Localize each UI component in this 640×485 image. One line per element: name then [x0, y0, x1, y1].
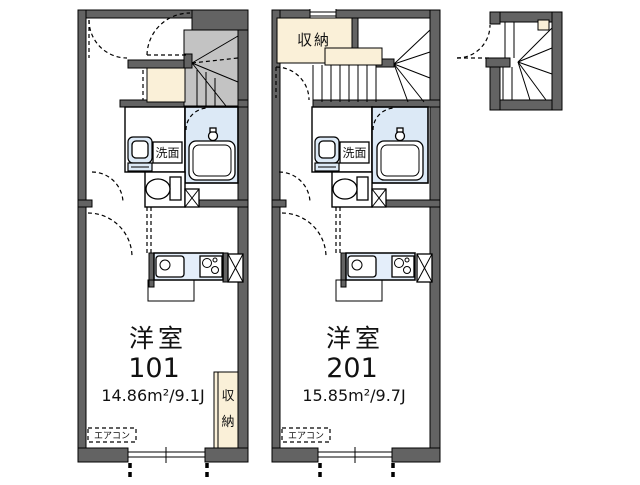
area-101: 14.86m²/9.1J	[101, 386, 204, 405]
unit-101-window	[128, 447, 207, 479]
door-arc-101-entry	[89, 20, 127, 58]
aircon-label-201: エアコン	[288, 432, 324, 442]
floorplan-drawing: 洗面	[0, 0, 640, 485]
closet-char-bottom-101: 納	[221, 415, 234, 430]
unit-101-washroom: 洗面	[125, 107, 185, 172]
toilet-bowl-201	[333, 179, 357, 199]
kitchen-stove-101	[200, 256, 222, 277]
external-staircase	[457, 12, 562, 110]
unit-101-bathroom	[185, 107, 238, 183]
unit-101-hall-doors	[88, 207, 151, 257]
toilet-tank-101	[170, 177, 181, 200]
unit-201-toilet-room	[279, 172, 386, 207]
kitchen-stove-201	[392, 256, 414, 277]
washroom-label-201: 洗面	[342, 146, 366, 160]
washroom-label-101: 洗面	[155, 146, 179, 160]
unit-201-kitchen	[336, 253, 432, 301]
unit-101-toilet-room	[92, 172, 199, 207]
unit-number-101: 101	[128, 353, 180, 384]
bathtub-101	[189, 141, 235, 180]
unit-201-washroom: 洗面	[312, 107, 372, 172]
area-201: 15.85m²/9.7J	[302, 386, 405, 405]
unit-101-aircon: エアコン	[88, 428, 136, 442]
unit-201-main-room: 洋室 201 15.85m²/9.7J	[302, 324, 405, 405]
unit-101-main-room: 洋室 101 14.86m²/9.1J	[101, 324, 204, 405]
door-arc-201-room	[282, 213, 326, 257]
unit-101: 洗面	[78, 10, 248, 479]
door-arc-201-entry	[276, 67, 309, 100]
door-arc-101-washroom	[92, 172, 123, 203]
unit-201-bathroom	[372, 107, 428, 183]
unit-201-hall-doors	[282, 207, 340, 257]
bath-faucet-101	[209, 132, 218, 141]
unit-201-aircon: エアコン	[282, 428, 330, 442]
closet-char-top-101: 収	[221, 389, 234, 404]
kitchen-step-101	[148, 280, 194, 301]
unit-101-entry-storage	[143, 68, 185, 102]
door-arc-201-washroom	[279, 172, 310, 203]
room-type-201: 洋室	[326, 324, 384, 353]
unit-101-kitchen	[148, 253, 243, 301]
unit-201: 収納 洗面	[272, 9, 440, 479]
room-type-101: 洋室	[129, 324, 187, 353]
door-arc-101-room	[88, 213, 132, 257]
bathtub-201	[377, 141, 423, 180]
toilet-bowl-101	[146, 179, 170, 199]
unit-201-window	[318, 447, 393, 479]
unit-201-storage: 収納	[277, 18, 382, 65]
unit-101-entry-doors	[89, 13, 190, 58]
door-arc-external-stairs	[457, 25, 490, 58]
bath-faucet-201	[396, 132, 405, 141]
unit-101-closet: 収 納	[214, 372, 238, 448]
storage-label-201: 収納	[297, 31, 331, 49]
unit-101-staircase	[184, 30, 238, 106]
external-stair-storage	[538, 20, 549, 30]
aircon-label-101: エアコン	[94, 432, 130, 442]
unit-201-entry-door	[276, 67, 309, 100]
unit-number-201: 201	[326, 353, 378, 384]
toilet-tank-201	[357, 177, 368, 200]
floorplan-canvas: 洗面	[0, 0, 640, 485]
